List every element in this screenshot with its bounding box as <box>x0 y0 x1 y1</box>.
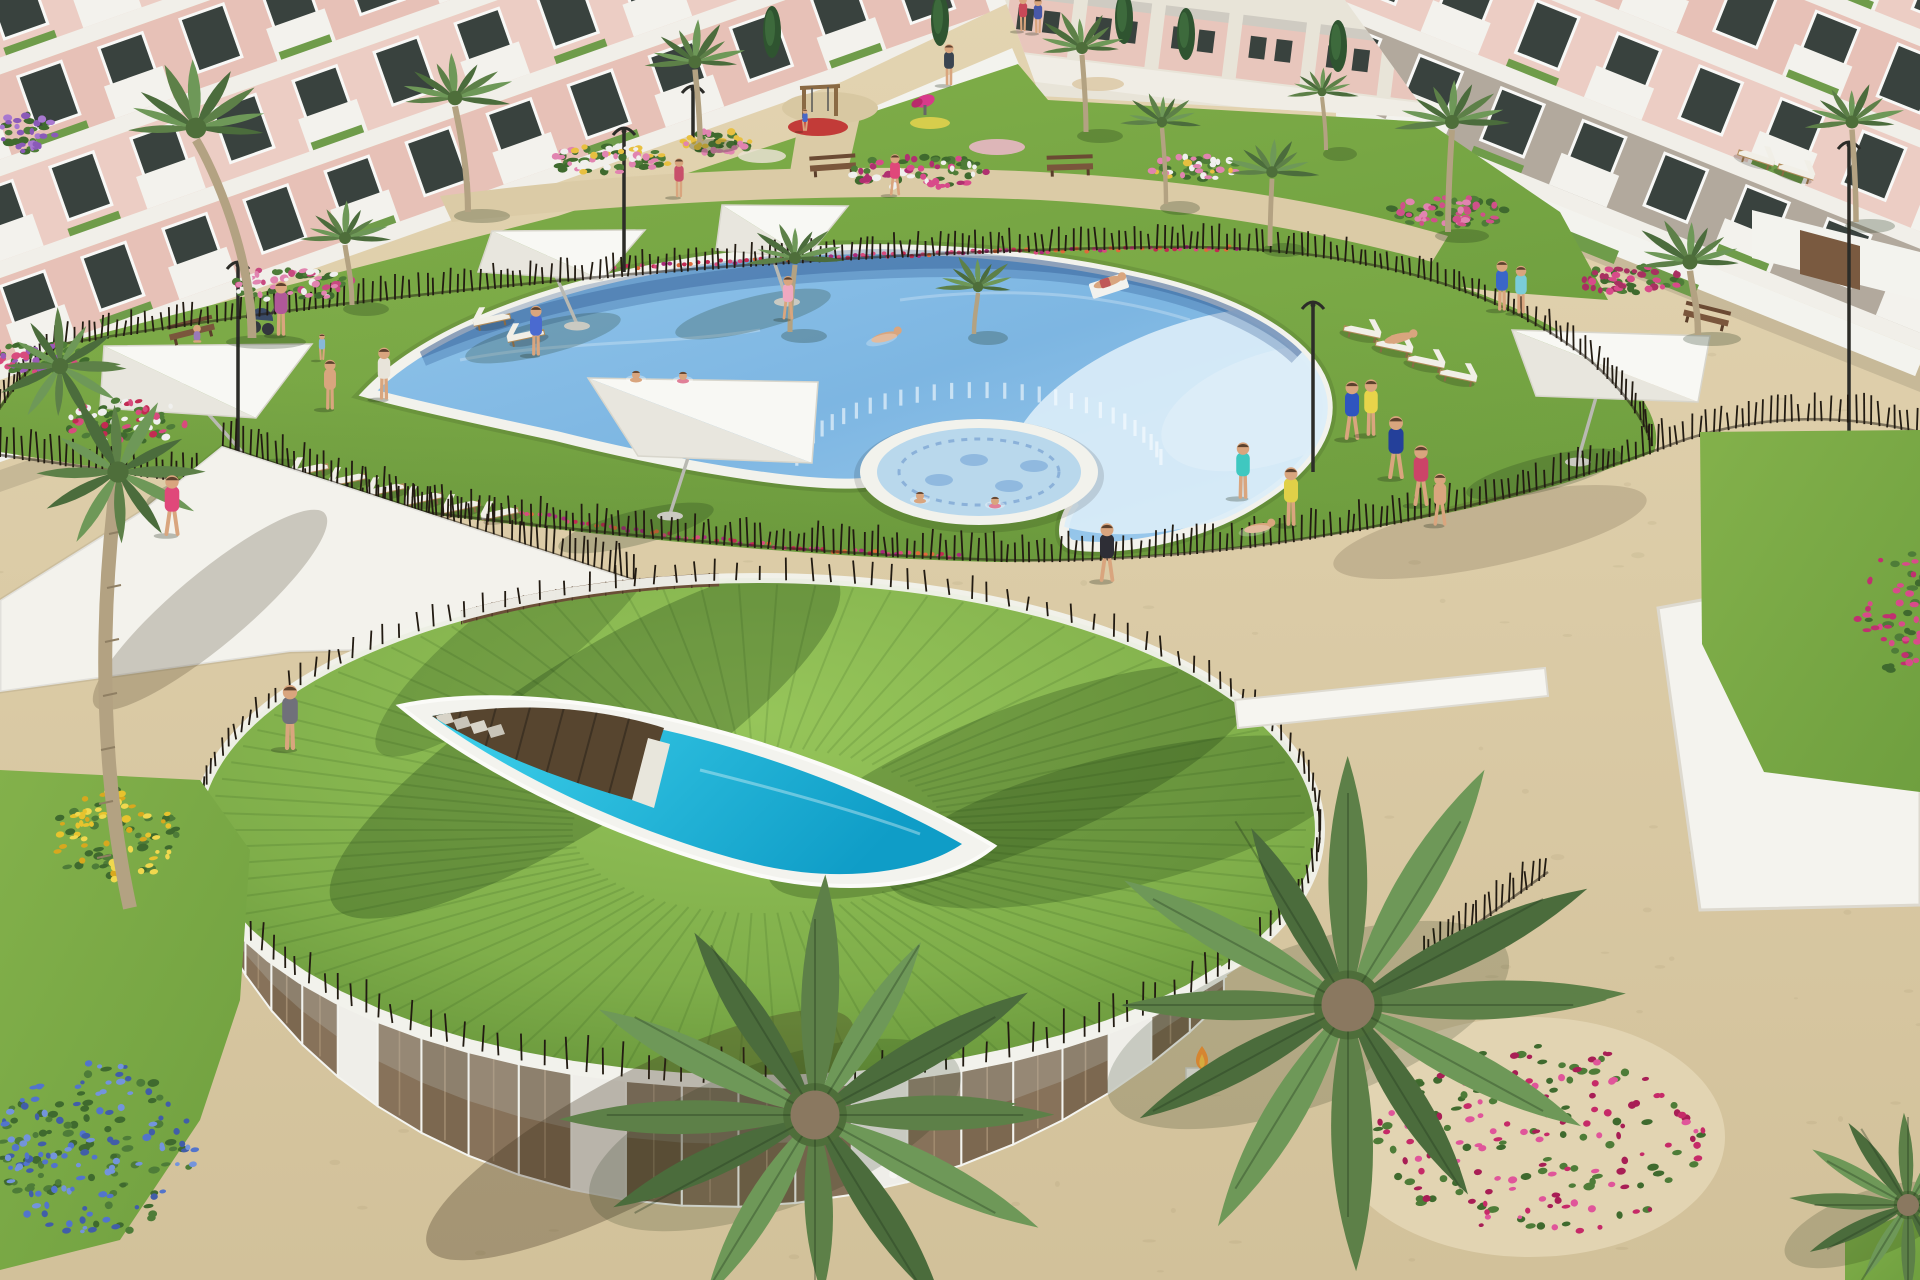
resort-aerial-render <box>0 0 1920 1280</box>
spa-circle <box>854 419 1104 533</box>
render-canvas <box>0 0 1920 1280</box>
